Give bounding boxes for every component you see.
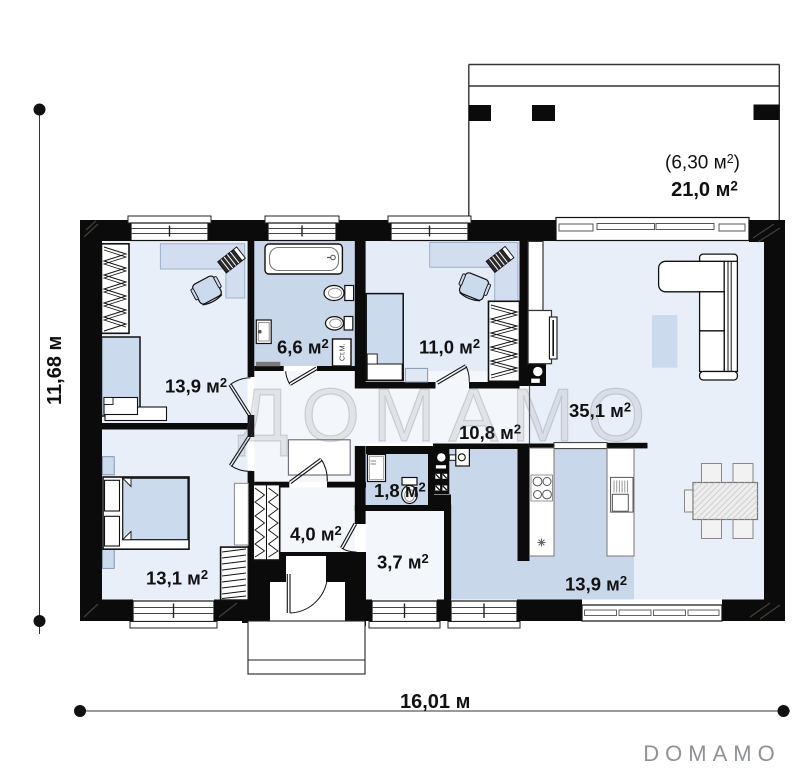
- svg-text:16,01 м: 16,01 м: [400, 691, 470, 713]
- svg-text:13,9 м2: 13,9 м2: [565, 573, 627, 595]
- svg-text:13,1 м2: 13,1 м2: [146, 567, 208, 589]
- svg-text:6,6 м2: 6,6 м2: [277, 336, 329, 358]
- svg-text:3,7 м2: 3,7 м2: [377, 551, 429, 573]
- svg-text:1,8 м2: 1,8 м2: [374, 480, 426, 502]
- svg-text:11,0 м2: 11,0 м2: [419, 336, 480, 358]
- svg-text:11,68 м: 11,68 м: [44, 336, 66, 405]
- svg-text:DOMAMO: DOMAMO: [643, 741, 780, 766]
- svg-text:4,0 м2: 4,0 м2: [290, 523, 342, 545]
- svg-text:21,0 м2: 21,0 м2: [671, 179, 738, 202]
- svg-text:Ст.М.: Ст.М.: [338, 343, 347, 361]
- svg-text:13,9 м2: 13,9 м2: [165, 375, 227, 397]
- svg-text:ДОМАМО: ДОМАМО: [238, 373, 658, 457]
